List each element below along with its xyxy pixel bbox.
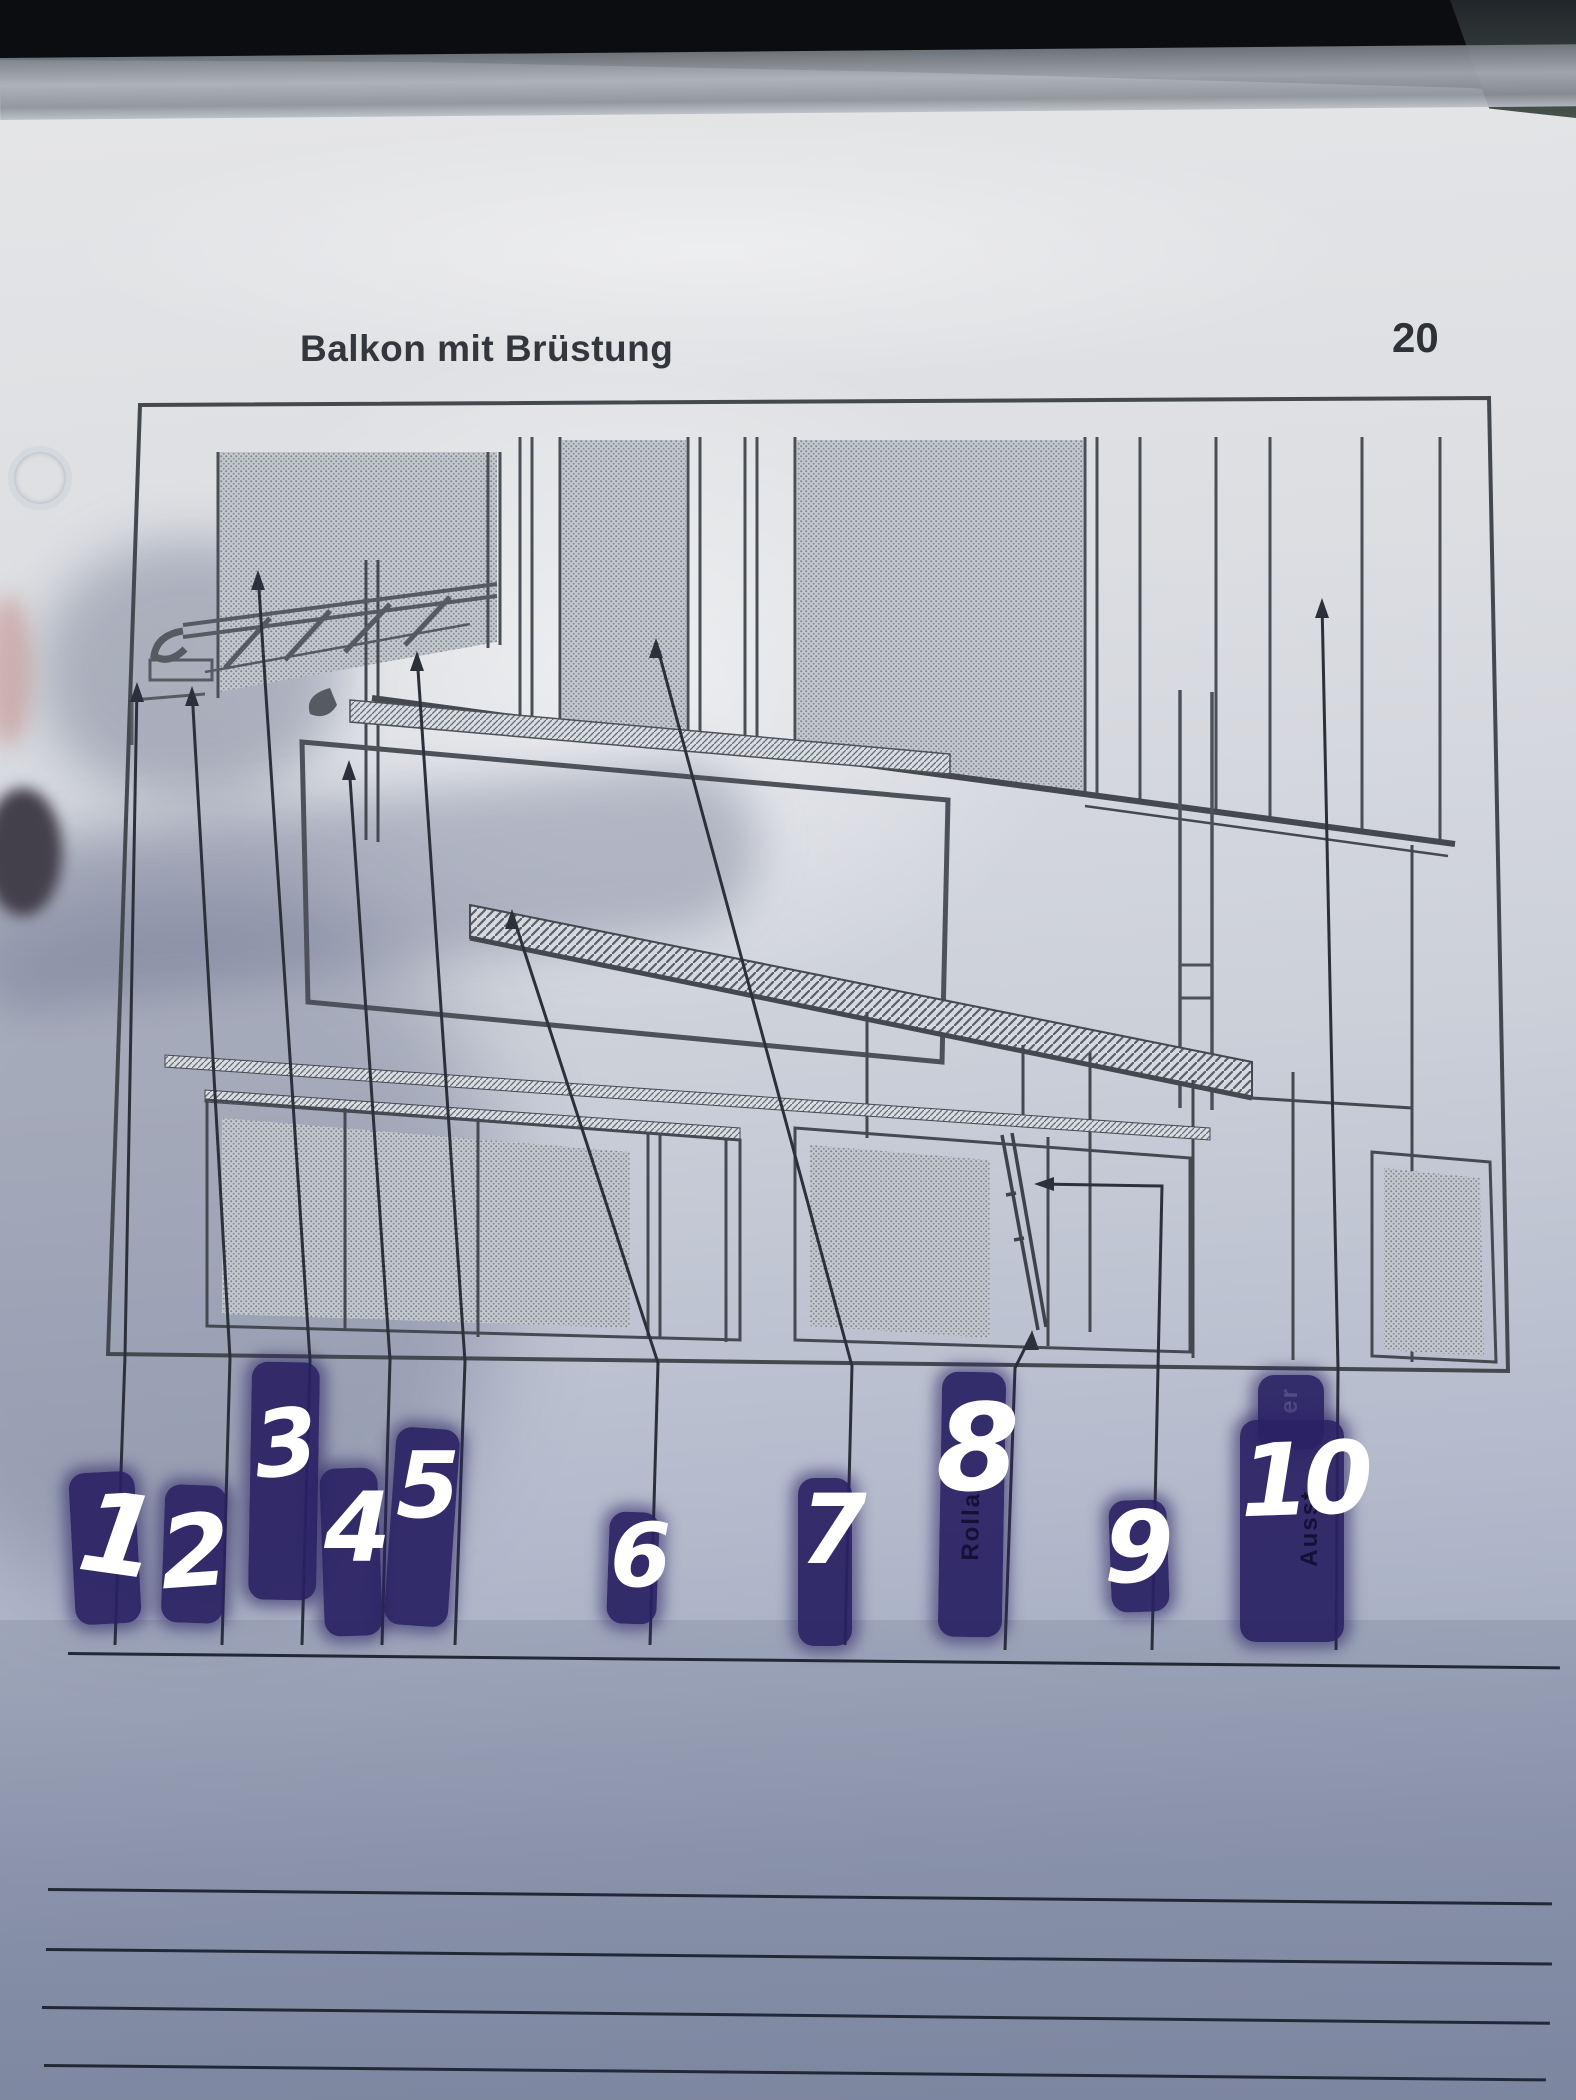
label-2: 2: [157, 1500, 233, 1605]
label-5: 5: [396, 1440, 460, 1532]
worksheet-photo: Balkon mit Brüstung 20: [0, 0, 1576, 2100]
label-4: 4: [324, 1480, 391, 1576]
balcony-diagram: [0, 0, 1576, 2100]
label-1: 1: [73, 1475, 166, 1597]
upper-windows: [218, 437, 1440, 842]
label-9: 9: [1104, 1498, 1174, 1598]
label-7: 7: [800, 1482, 867, 1578]
label-10: 10: [1238, 1428, 1369, 1532]
print-fragment: er: [1276, 1387, 1304, 1414]
label-3: 3: [249, 1395, 322, 1493]
label-6: 6: [610, 1512, 671, 1600]
tilted-window-sash: [1002, 1133, 1046, 1330]
label-8: 8: [936, 1390, 1020, 1510]
